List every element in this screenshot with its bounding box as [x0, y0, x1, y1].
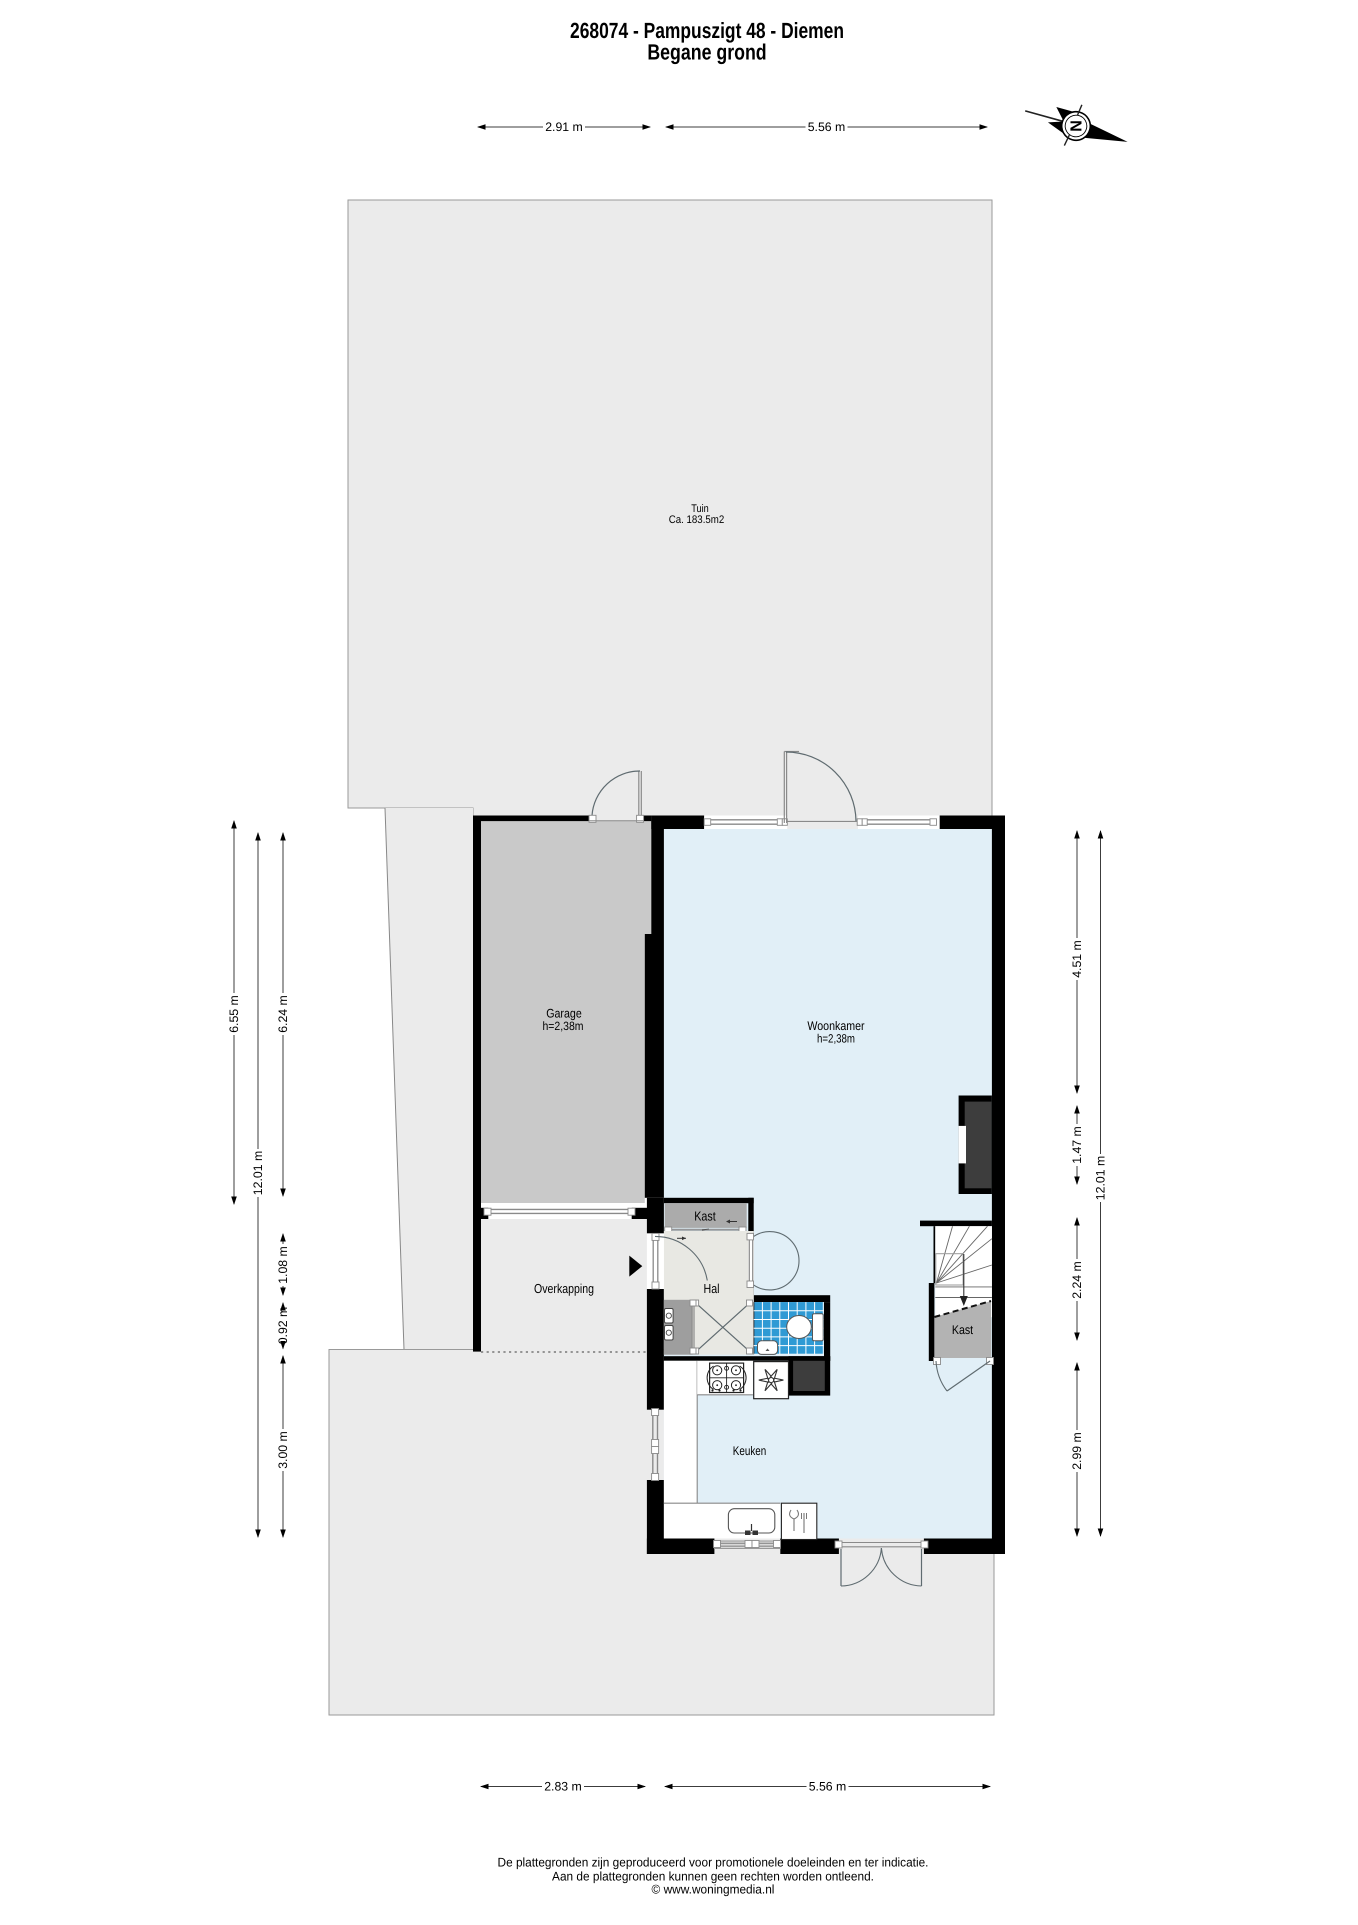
svg-text:6.24 m: 6.24 m	[276, 995, 290, 1033]
svg-text:5.56 m: 5.56 m	[809, 1780, 847, 1794]
svg-text:Hal: Hal	[704, 1281, 720, 1296]
svg-text:0.92 m: 0.92 m	[276, 1307, 290, 1345]
svg-text:Kast: Kast	[952, 1323, 974, 1337]
svg-text:Kast: Kast	[694, 1209, 716, 1224]
svg-text:Aan de plattegronden kunnen ge: Aan de plattegronden kunnen geen rechten…	[552, 1869, 874, 1883]
svg-text:De plattegronden zijn geproduc: De plattegronden zijn geproduceerd voor …	[498, 1856, 929, 1870]
svg-text:2.91 m: 2.91 m	[545, 120, 583, 134]
svg-text:Keuken: Keuken	[733, 1444, 767, 1458]
svg-text:12.01 m: 12.01 m	[251, 1151, 265, 1195]
svg-text:h=2,38m: h=2,38m	[542, 1019, 583, 1033]
svg-text:N: N	[1066, 120, 1083, 132]
svg-text:Ca. 183.5m2: Ca. 183.5m2	[669, 514, 725, 526]
svg-text:Overkapping: Overkapping	[534, 1281, 594, 1296]
svg-text:5.56 m: 5.56 m	[808, 120, 846, 134]
svg-text:2.99 m: 2.99 m	[1070, 1432, 1084, 1470]
svg-text:h=2,38m: h=2,38m	[817, 1032, 855, 1046]
svg-text:6.55 m: 6.55 m	[227, 995, 241, 1033]
svg-text:© www.woningmedia.nl: © www.woningmedia.nl	[652, 1883, 775, 1897]
svg-text:2.24 m: 2.24 m	[1070, 1261, 1084, 1299]
svg-text:1.47 m: 1.47 m	[1070, 1126, 1084, 1164]
svg-text:1.08 m: 1.08 m	[276, 1246, 290, 1284]
svg-text:4.51 m: 4.51 m	[1070, 940, 1084, 978]
svg-text:3.00 m: 3.00 m	[276, 1431, 290, 1469]
svg-text:12.01 m: 12.01 m	[1094, 1156, 1108, 1200]
svg-text:Begane grond: Begane grond	[647, 40, 766, 65]
svg-text:2.83 m: 2.83 m	[544, 1780, 582, 1794]
